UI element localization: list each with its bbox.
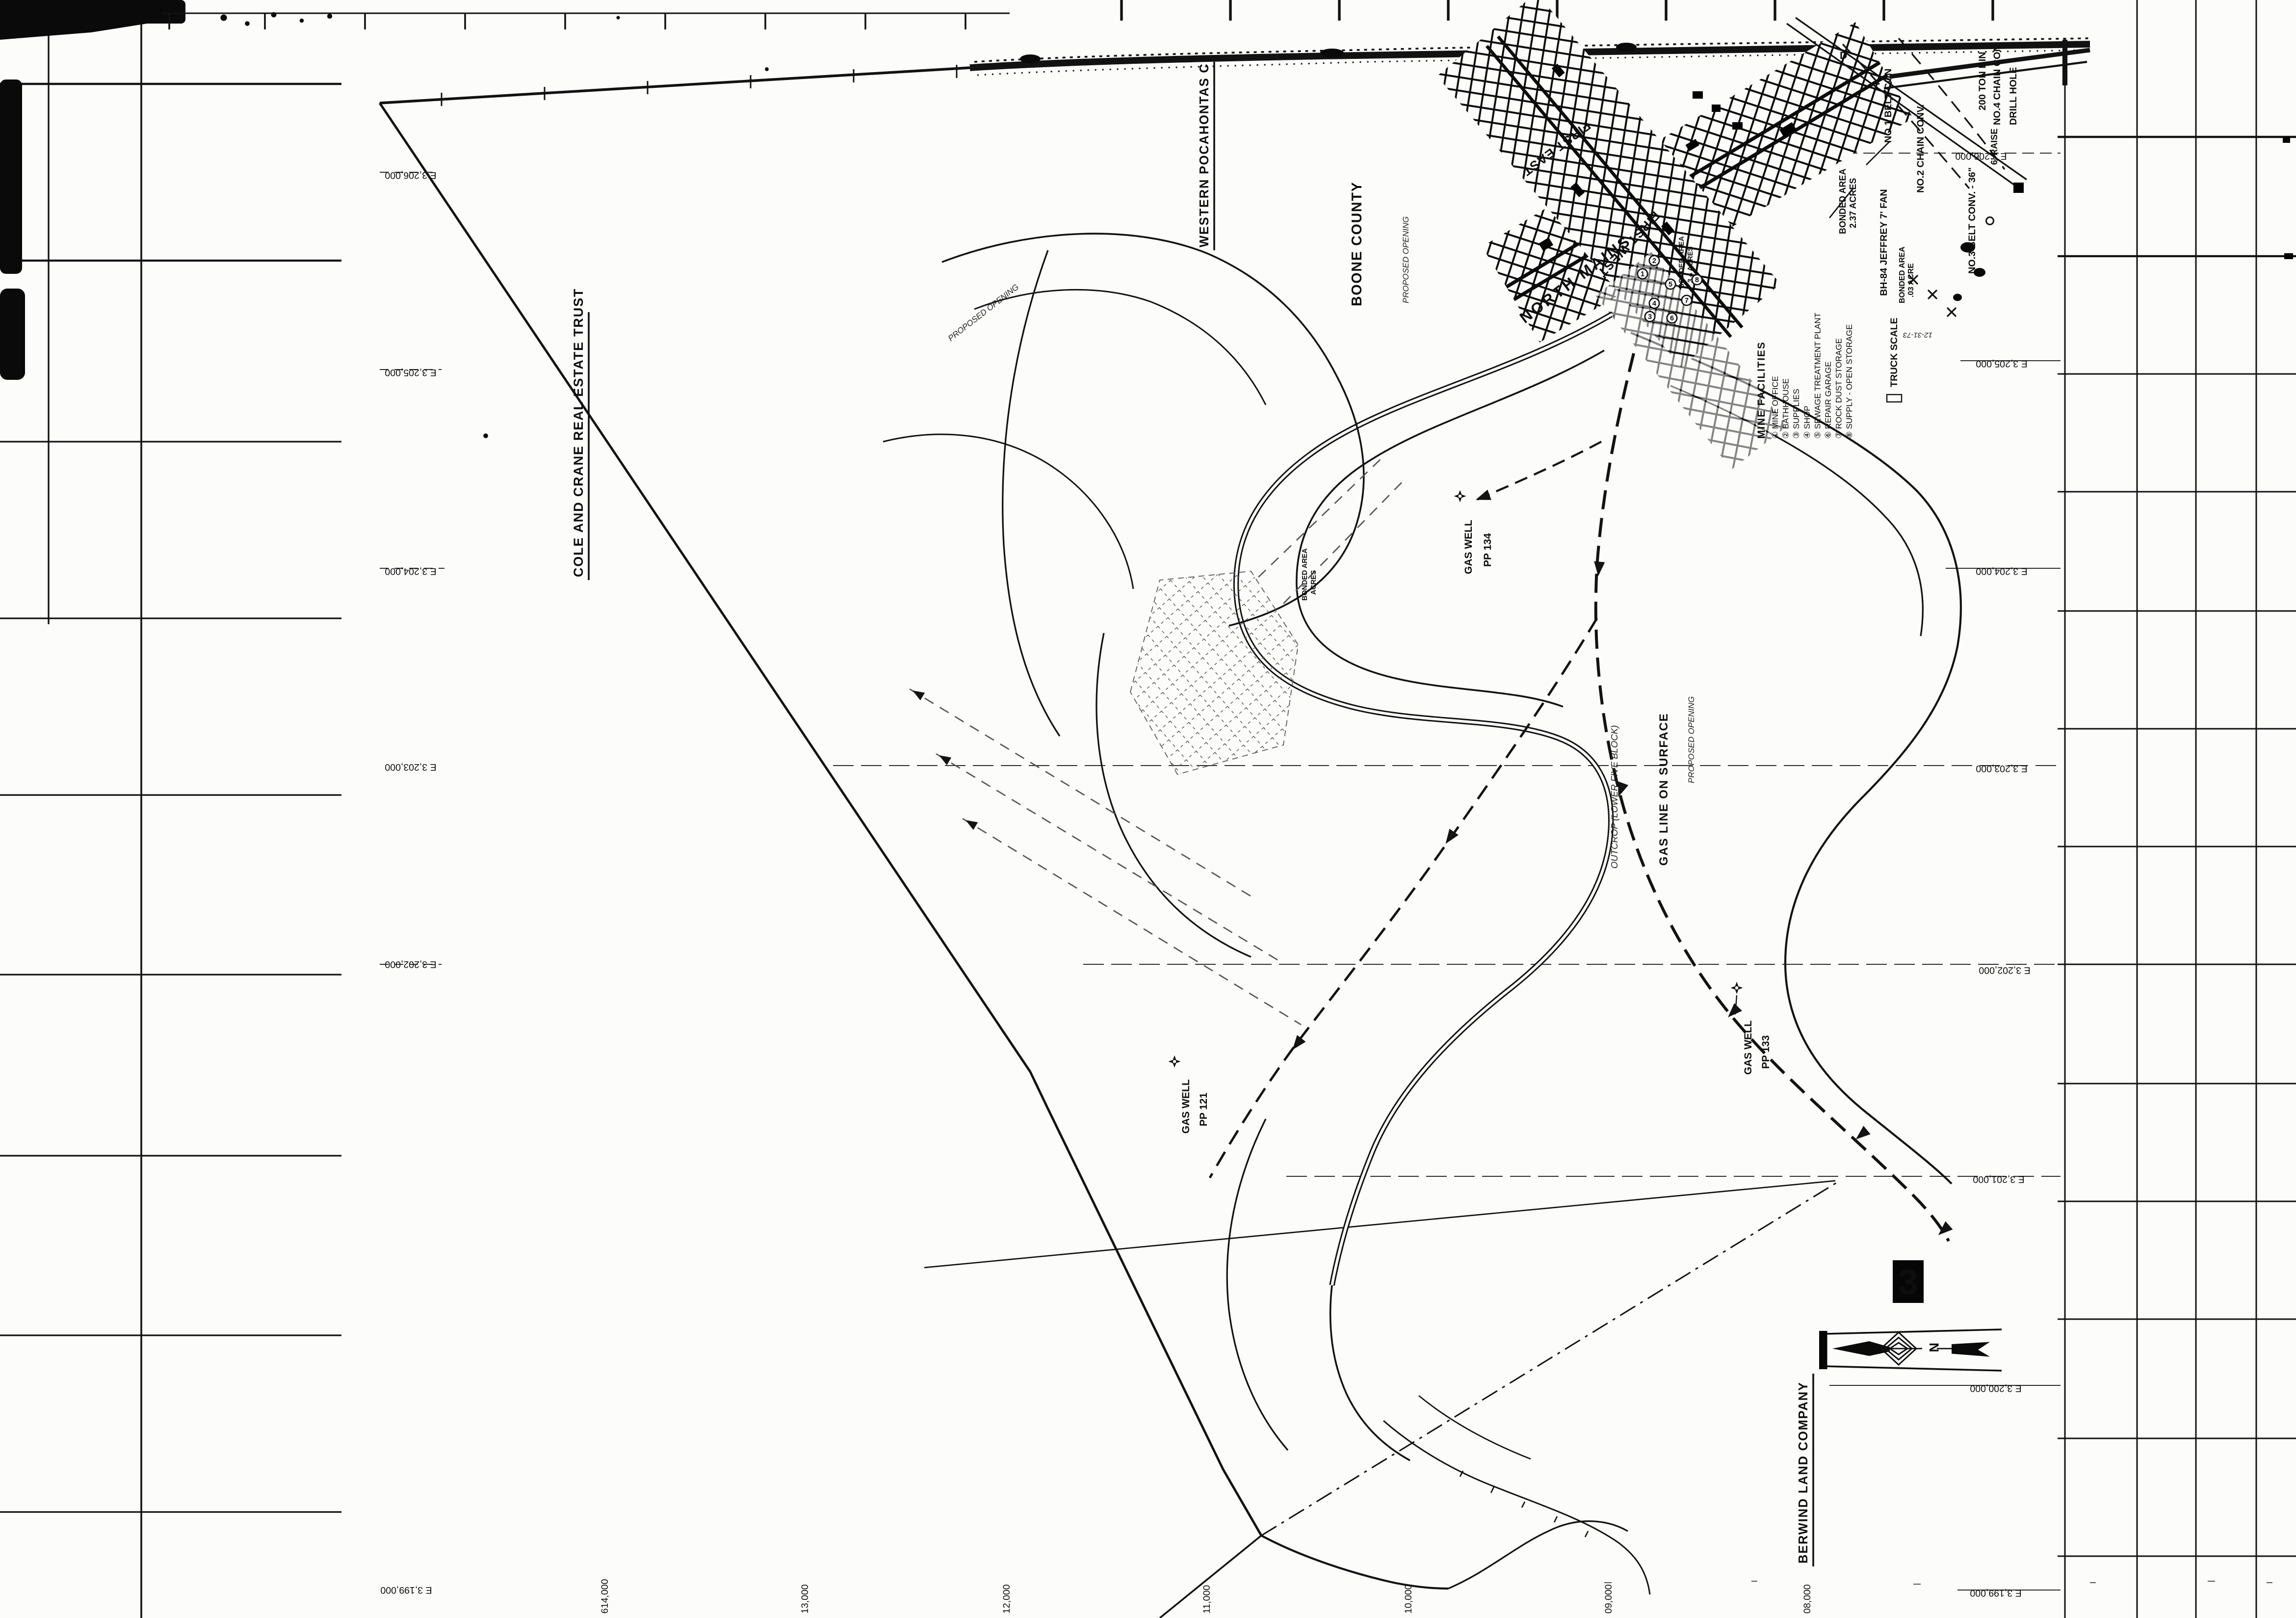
easting-label-left-3204000: E 3,204,000: [385, 566, 436, 577]
northing-label-611000: 11,000: [1201, 1585, 1212, 1614]
note-proposed-opening-3: PROPOSED OPENING: [946, 282, 1020, 343]
easting-label-right-3202000: E 3,202,000: [1979, 965, 2030, 976]
legend-item-supply-storage: ⑧ SUPPLY - OPEN STORAGE: [1845, 324, 1854, 439]
label-no1-belt-conv: NO.1 BELT CON: [1883, 69, 1894, 143]
northing-label-609000: 09,000: [1603, 1584, 1614, 1614]
northing-label-610000: 10,000: [1403, 1584, 1414, 1614]
tract-label-berwind: BERWIND LAND COMPANY: [1797, 1381, 1810, 1564]
bonded-area-3-line1: BONDED AREA: [1898, 246, 1906, 303]
easting-label-left-3205000: E 3,205,000: [385, 367, 436, 378]
facility-marker-6: 6: [1670, 315, 1674, 322]
legend-item-repair-garage: ⑥ REPAIR GARAGE: [1824, 362, 1833, 439]
right-margin-grid: [2058, 0, 2296, 1618]
gas-line-on-surface: [1210, 353, 1952, 1241]
label-no4-chain-conv: NO.4 CHAIN CON: [1992, 45, 2003, 125]
tract-label-western-pocahontas: WESTERN POCAHONTAS C: [1198, 63, 1211, 247]
label-raise: 6' RAISE: [1989, 129, 1999, 165]
truck-scale-symbol: [1887, 395, 1902, 402]
label-no2-chain-conv: NO.2 CHAIN CONV.: [1915, 104, 1926, 193]
label-gas-well-133-line2: PP 133: [1760, 1035, 1772, 1069]
note-outcrop: OUTCROP (LOWER FIVE BLOCK): [1609, 725, 1619, 869]
easting-label-right-3204000: E 3,204,000: [1976, 566, 2027, 577]
sheet-boundary: [380, 38, 2090, 1618]
northing-label-613000: 13,000: [800, 1584, 810, 1614]
bonded-area-2-line1: BONDED AREA: [1678, 236, 1686, 289]
easting-label-left-3202000: E 3,202,000: [385, 959, 436, 970]
facility-marker-7: 7: [1685, 297, 1689, 305]
note-proposed-opening-1: PROPOSED OPENING: [1687, 696, 1696, 783]
legend-item-mine-office: ① MINE OFFICE: [1771, 376, 1780, 439]
tract-label-cole-crane: COLE AND CRANE REAL ESTATE TRUST: [571, 288, 586, 577]
label-no3-belt-conv: NO.3 BELT CONV. - 36": [1967, 167, 1978, 274]
top-margin-ruler: [162, 0, 1993, 29]
facility-marker-2: 2: [1652, 257, 1656, 265]
facility-marker-1: 1: [1641, 270, 1644, 278]
facility-marker-3: 3: [1648, 313, 1652, 321]
easting-label-right-3200000: E 3,200,000: [1970, 1383, 2021, 1394]
gas-well-symbol-pp134: [1454, 490, 1466, 502]
facility-marker-5: 5: [1669, 281, 1672, 289]
easting-label-right-3205000: E 3,205,000: [1976, 358, 2027, 369]
label-truck-scale: TRUCK SCALE: [1889, 318, 1900, 387]
easting-label-left-3199000: E 3,199,000: [380, 1585, 432, 1595]
bonded-area-1-line1: BONDED AREA: [1838, 169, 1848, 234]
north-letter: N: [1927, 1343, 1941, 1353]
mine-map-sheet: 1 2 3 4 5 6 7 8 E 3,206,000 E 3,205,000 …: [0, 0, 2296, 1618]
sheet-number: 3: [1898, 1263, 1918, 1302]
bonded-area-4-acres: ACRES: [1310, 570, 1318, 595]
survey-lines: [924, 1181, 1840, 1536]
facility-marker-4: 4: [1652, 300, 1656, 308]
projected-workings-patch: [1130, 571, 1298, 774]
easting-label-right-3201000: E 3,201,000: [1973, 1174, 2024, 1185]
northing-label-612000: 12,000: [1001, 1584, 1012, 1614]
legend-title: MINE FACILITIES: [1756, 341, 1767, 439]
bonded-area-4-line1: BONDED AREA: [1301, 548, 1309, 601]
legend-item-shop: ④ SHOP: [1802, 406, 1812, 439]
gas-well-symbol-pp121: [1168, 1055, 1180, 1067]
county-label: BOONE COUNTY: [1349, 182, 1365, 306]
mine-facilities-legend: MINE FACILITIES ① MINE OFFICE ② BATHHOUS…: [1756, 313, 1854, 439]
label-gas-well-134-line2: PP 134: [1482, 533, 1493, 567]
label-drill-hole: DRILL HOLE: [2008, 67, 2019, 125]
label-ton-bin: 200 TON BIN: [1977, 52, 1988, 110]
easting-label-left-3203000: E 3,203,000: [385, 762, 436, 772]
bonded-area-1-acres: 2.37 ACRES: [1848, 178, 1858, 228]
facility-marker-8: 8: [1695, 276, 1699, 284]
grid-labels: E 3,206,000 E 3,205,000 E 3,204,000 E 3,…: [380, 151, 2030, 1614]
northing-label-608000: 08,000: [1802, 1584, 1813, 1614]
easting-label-left-3206000: E 3,206,000: [385, 170, 436, 181]
note-proposed-opening-2: PROPOSED OPENING: [1401, 216, 1410, 303]
gas-well-symbol-pp133: [1730, 981, 1743, 994]
label-survey-date: 12-31-73: [1903, 331, 1932, 339]
bonded-area-3-acres: .03 ACRE: [1907, 263, 1915, 297]
legend-item-supplies: ③ SUPPLIES: [1792, 389, 1801, 439]
label-gas-well-121-line1: GAS WELL: [1180, 1079, 1192, 1134]
projected-entry-arrows: [910, 687, 978, 830]
corner-marker-d: D: [1840, 50, 1847, 61]
northing-label-614000: 614,000: [600, 1579, 610, 1614]
legend-item-rock-dust: ⑦ ROCK DUST STORAGE: [1834, 338, 1844, 439]
map-canvas: 1 2 3 4 5 6 7 8 E 3,206,000 E 3,205,000 …: [0, 0, 2296, 1618]
label-jeffrey-fan: BH-84 JEFFREY 7' FAN: [1879, 189, 1889, 296]
label-gas-well-121-line2: PP 121: [1198, 1092, 1209, 1126]
legend-item-bathhouse: ② BATHHOUSE: [1781, 378, 1791, 439]
label-gas-well-134-line1: GAS WELL: [1463, 520, 1474, 574]
left-margin-grid: [0, 0, 341, 1618]
sheet-number-badge: 3: [1893, 1260, 1924, 1303]
legend-item-sewage: ⑤ SEWAGE TREATMENT PLANT: [1813, 313, 1822, 439]
label-gas-line-on-surface: GAS LINE ON SURFACE: [1657, 713, 1670, 866]
easting-label-right-3199000: E 3,199,000: [1970, 1588, 2021, 1598]
label-gas-well-133-line1: GAS WELL: [1743, 1020, 1754, 1075]
projected-entry-lines: [910, 456, 1406, 1025]
north-arrow-tail: [1952, 1342, 1990, 1357]
north-arrow: N: [1819, 1329, 2002, 1371]
easting-label-right-3203000: E 3,203,000: [1976, 763, 2027, 774]
bonded-area-2-acres: 3.4 ACRES: [1687, 246, 1695, 283]
